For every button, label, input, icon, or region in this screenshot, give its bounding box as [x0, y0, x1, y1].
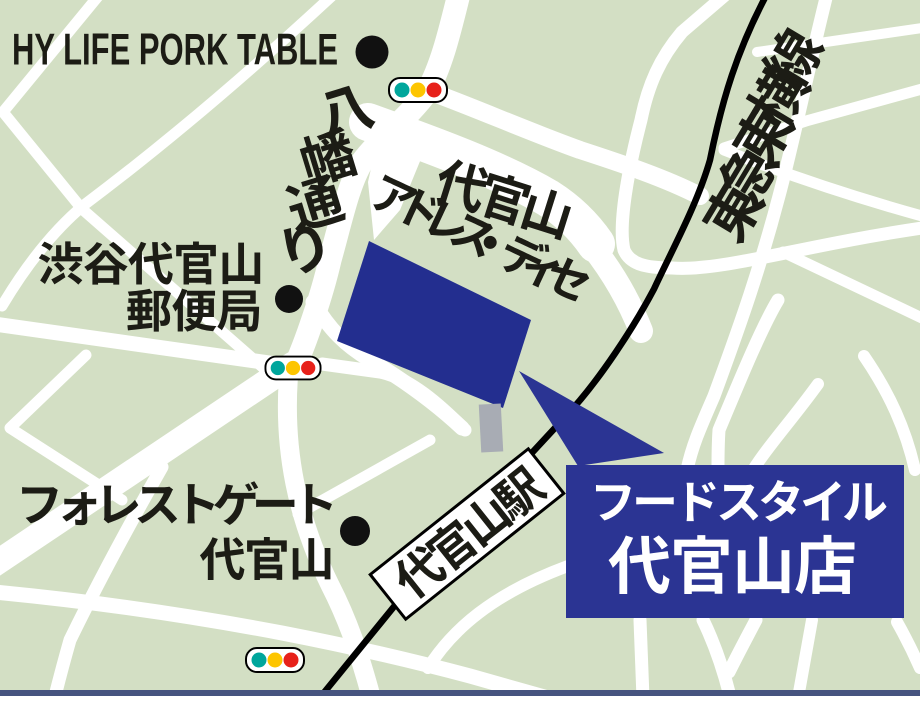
svg-text:HY LIFE PORK TABLE: HY LIFE PORK TABLE	[12, 26, 338, 75]
